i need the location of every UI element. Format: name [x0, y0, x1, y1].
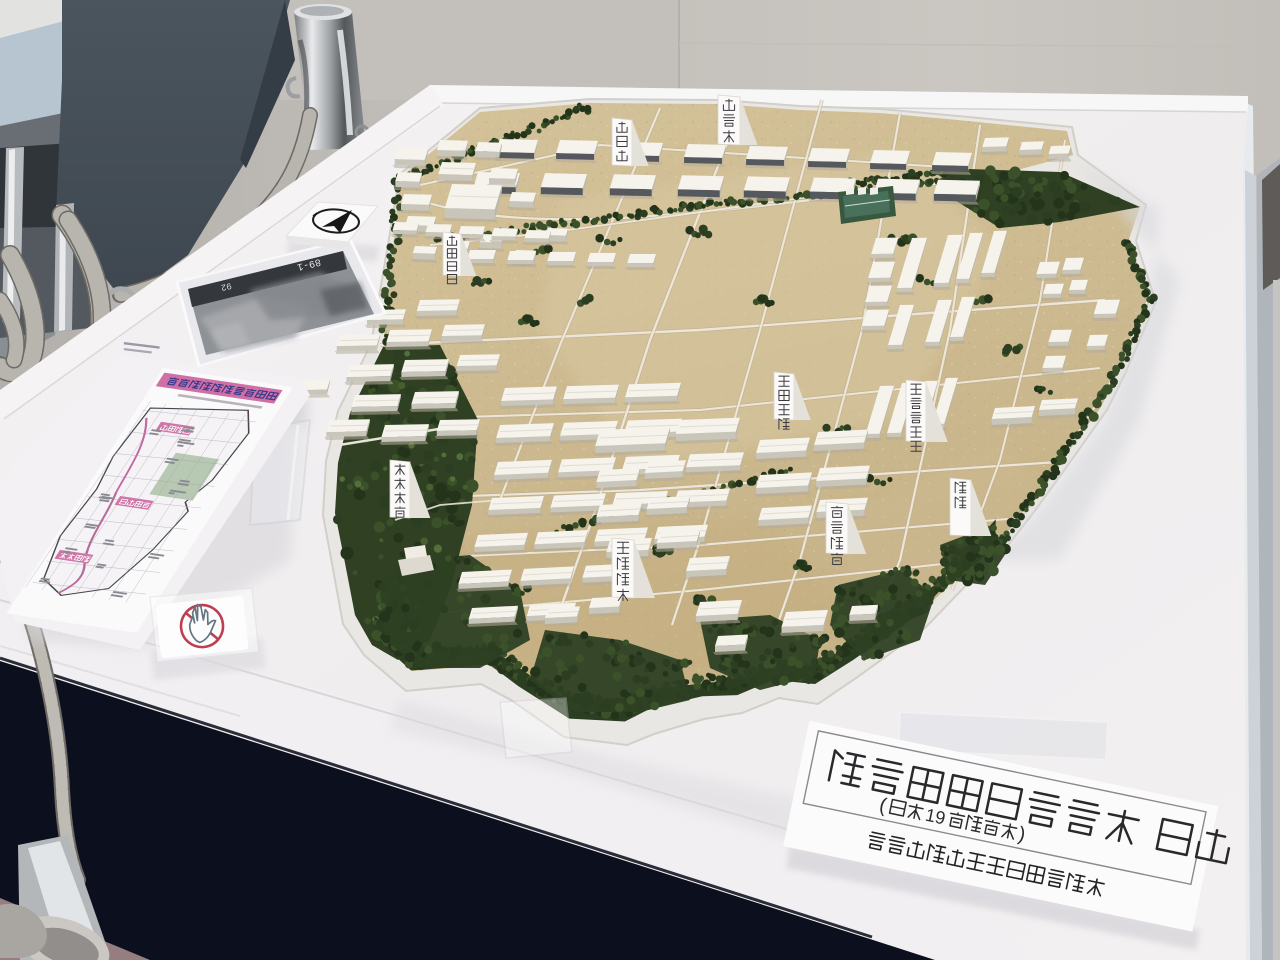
- svg-text:19: 19: [924, 805, 948, 829]
